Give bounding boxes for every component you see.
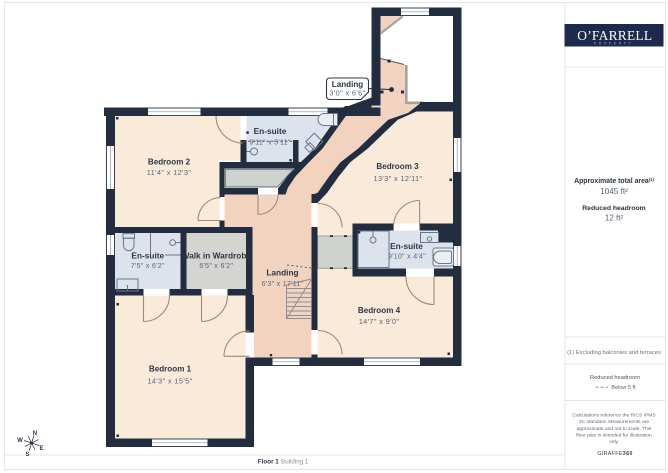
svg-text:Building 1: Building 1 <box>281 459 309 466</box>
svg-text:PROPERTY: PROPERTY <box>594 41 633 45</box>
svg-text:Reduced headroom: Reduced headroom <box>582 205 645 212</box>
svg-text:12 ft²: 12 ft² <box>605 214 624 223</box>
svg-text:W: W <box>17 438 23 444</box>
svg-text:14'7" x 9'0": 14'7" x 9'0" <box>359 317 400 326</box>
svg-text:En-suite: En-suite <box>254 126 287 136</box>
svg-text:Below 5 ft: Below 5 ft <box>611 385 636 391</box>
svg-text:6'5" x 6'2": 6'5" x 6'2" <box>199 263 233 270</box>
svg-text:Approximate total area(1): Approximate total area(1) <box>574 177 654 185</box>
svg-text:GIRAFFE360: GIRAFFE360 <box>597 451 632 457</box>
svg-text:3'0" x 6'6": 3'0" x 6'6" <box>329 89 365 98</box>
svg-text:(1) Excluding balconies and te: (1) Excluding balconies and terraces <box>567 350 661 356</box>
svg-text:9'11" x 5'11": 9'11" x 5'11" <box>249 140 290 147</box>
svg-text:Calculations reference the RIC: Calculations reference the RICS IPMS <box>572 412 656 418</box>
svg-text:only.: only. <box>609 439 619 445</box>
svg-text:1045 ft²: 1045 ft² <box>600 187 628 196</box>
svg-text:6'3" x 17'11": 6'3" x 17'11" <box>262 281 304 288</box>
svg-text:7'5" x 6'2": 7'5" x 6'2" <box>131 263 165 270</box>
svg-text:14'3" x 15'5": 14'3" x 15'5" <box>147 377 192 386</box>
svg-text:Bedroom 3: Bedroom 3 <box>376 162 419 171</box>
svg-text:approximate and not to scale.: approximate and not to scale. This <box>577 426 652 432</box>
svg-text:Bedroom 1: Bedroom 1 <box>149 365 192 374</box>
svg-text:Bedroom 4: Bedroom 4 <box>358 306 401 315</box>
svg-text:Floor 1: Floor 1 <box>258 459 279 466</box>
svg-text:Walk in Wardrobe: Walk in Wardrobe <box>182 251 252 261</box>
svg-text:E: E <box>39 446 43 452</box>
svg-text:13'3" x 12'11": 13'3" x 12'11" <box>374 174 423 183</box>
svg-text:Bedroom 2: Bedroom 2 <box>148 158 191 167</box>
svg-text:S: S <box>25 452 29 458</box>
svg-text:11'4" x 12'3": 11'4" x 12'3" <box>147 168 192 177</box>
svg-text:floor plan is intended for ill: floor plan is intended for illustration <box>576 433 652 439</box>
svg-text:Landing: Landing <box>266 268 298 278</box>
svg-text:N: N <box>33 431 37 437</box>
svg-text:En-suite: En-suite <box>131 251 164 261</box>
svg-text:3C standard. Measurements are: 3C standard. Measurements are <box>579 419 649 425</box>
svg-text:Reduced headroom: Reduced headroom <box>590 375 640 381</box>
svg-text:En-suite: En-suite <box>390 241 423 251</box>
svg-text:9'10" x 4'4": 9'10" x 4'4" <box>388 254 426 261</box>
